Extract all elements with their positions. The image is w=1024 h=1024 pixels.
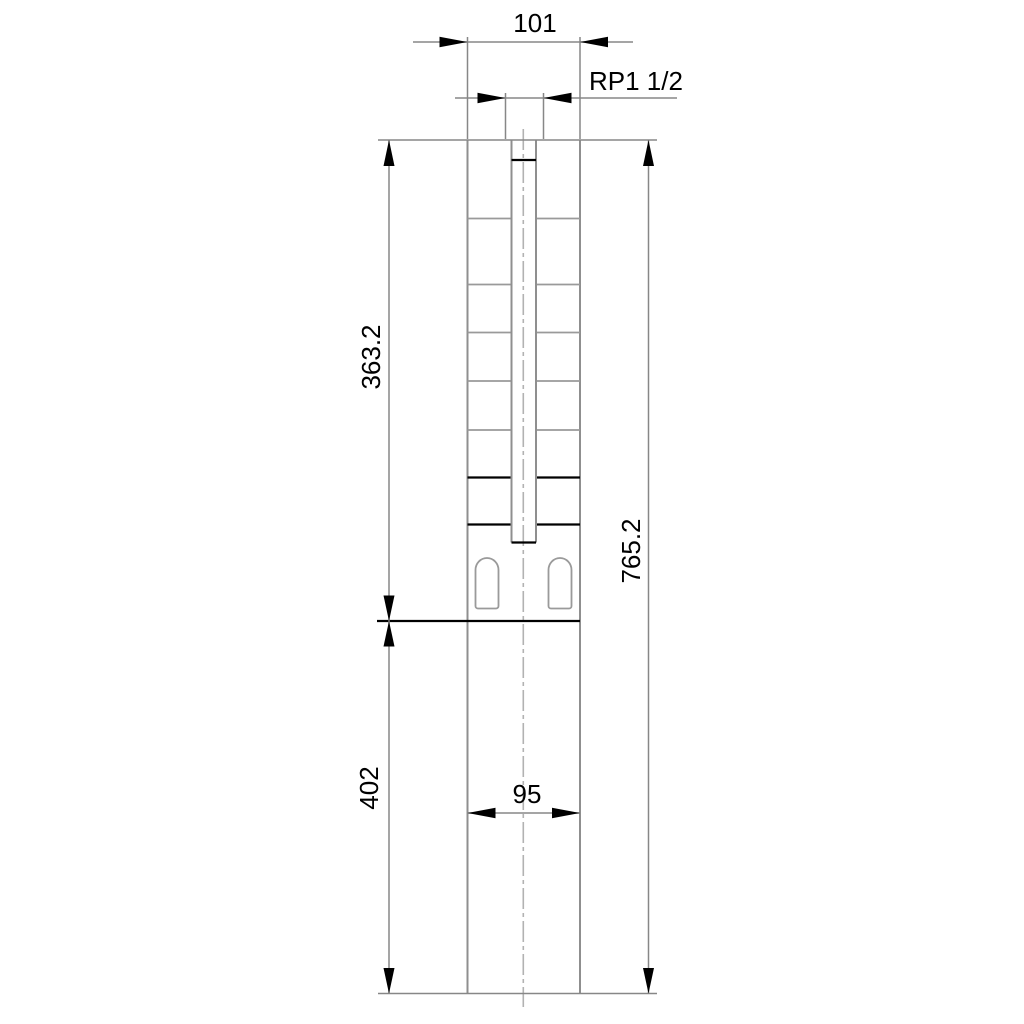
arrowhead-right — [478, 93, 506, 103]
arrowhead-left — [580, 37, 608, 47]
arrowhead-down — [384, 968, 395, 994]
cable-slot-left — [476, 558, 499, 609]
arrowhead-down — [643, 968, 654, 994]
arrowhead-right — [552, 808, 580, 818]
dim-lower-width: 95 — [468, 779, 581, 818]
arrowhead-left — [544, 93, 572, 103]
arrowhead-up — [384, 140, 395, 166]
drawing-canvas: 101 RP1 1/2 363.2 402 765.2 95 — [0, 0, 1024, 1024]
arrowhead-left — [468, 808, 496, 818]
arrowhead-up — [643, 140, 654, 166]
dim-left-heights: 363.2 402 — [354, 140, 657, 994]
dim-upper-height-label: 363.2 — [356, 324, 386, 389]
arrowhead-right — [440, 37, 468, 47]
dim-total-height-label: 765.2 — [616, 518, 646, 583]
dim-lower-width-label: 95 — [513, 779, 542, 809]
dim-thread: RP1 1/2 — [455, 66, 683, 139]
dim-top-width-label: 101 — [513, 8, 556, 38]
arrowhead-down — [384, 596, 395, 622]
dim-lower-height-label: 402 — [354, 766, 384, 809]
dim-thread-label: RP1 1/2 — [589, 66, 683, 96]
pump-dimensional-drawing: 101 RP1 1/2 363.2 402 765.2 95 — [0, 0, 1024, 1024]
dim-total-height: 765.2 — [616, 140, 654, 994]
cable-slot-right — [549, 558, 572, 609]
arrowhead-up — [384, 621, 395, 647]
